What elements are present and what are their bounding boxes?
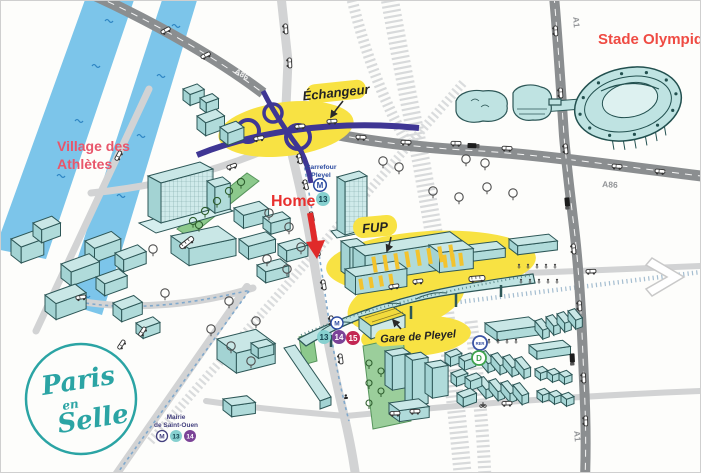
label-stade-olympique: Stade Olympique	[598, 31, 701, 48]
tree-icon	[455, 193, 463, 204]
tree-icon	[395, 163, 403, 174]
line-14-badge-label: 14	[335, 333, 344, 342]
building	[561, 392, 574, 406]
tree-icon	[379, 157, 387, 168]
line-13-badge-label: 13	[319, 195, 328, 204]
label-village-line2: Athlètes	[57, 156, 112, 172]
tree-icon	[509, 189, 517, 200]
car-icon	[117, 339, 127, 350]
building	[45, 284, 86, 320]
building	[509, 234, 557, 255]
label-carrefour-line2: Pleyel	[311, 172, 331, 179]
person-icon	[547, 279, 550, 284]
tree-icon	[481, 159, 489, 170]
tree-icon	[462, 155, 470, 166]
truck-icon	[467, 143, 479, 148]
line-13-badge-label: 13	[172, 434, 180, 441]
metro-m-badge-label: M	[159, 433, 164, 440]
building	[257, 259, 289, 283]
person-icon	[515, 339, 518, 344]
label-carrefour-line1: Carrefour	[306, 164, 337, 171]
label-village-line1: Village des	[57, 138, 130, 154]
person-icon	[488, 339, 491, 344]
metro-m-badge-label: M	[317, 181, 324, 190]
label-a1-north: A1	[571, 16, 582, 28]
stadium	[568, 58, 689, 151]
building	[535, 366, 548, 380]
metro-m-badge-label: M	[334, 321, 339, 328]
tree-icon	[149, 245, 157, 256]
line-13-badge-label: 13	[320, 333, 329, 342]
truck-icon	[570, 353, 576, 365]
aquatic-centre-buildings	[456, 85, 561, 122]
building	[113, 296, 142, 322]
person-icon	[538, 279, 541, 284]
station-mairie-saint-ouen: Mairie de Saint-Ouen M 13 14	[154, 414, 198, 442]
building	[529, 340, 571, 359]
truck-icon	[564, 197, 570, 209]
person-icon	[506, 339, 509, 344]
building	[251, 339, 274, 358]
line-14-badge-label: 14	[186, 434, 194, 441]
building	[239, 232, 276, 260]
person-icon	[554, 264, 557, 269]
building	[515, 357, 531, 379]
tree-icon	[161, 289, 169, 300]
person-icon	[536, 264, 539, 269]
car-icon	[570, 244, 576, 254]
rer-badge-label: RER	[476, 341, 485, 346]
building	[485, 317, 541, 341]
label-a1-south: A1	[572, 430, 583, 442]
car-icon	[502, 401, 512, 407]
car-icon	[586, 269, 596, 275]
building	[547, 368, 560, 382]
tree-icon	[483, 183, 491, 194]
line-15-badge-label: 15	[349, 334, 358, 343]
building	[389, 399, 429, 422]
label-mairie-line2: de Saint-Ouen	[154, 422, 198, 429]
label-mairie-line1: Mairie	[167, 414, 186, 421]
person-icon	[545, 264, 548, 269]
person-icon	[556, 279, 559, 284]
building	[549, 390, 562, 404]
chevron-path-icon	[646, 258, 684, 296]
label-a86-east: A86	[602, 179, 618, 190]
scooter-icon	[344, 394, 348, 399]
building	[207, 177, 230, 213]
rer-d-badge-label: D	[476, 354, 482, 363]
car-icon	[337, 354, 344, 365]
building	[223, 396, 255, 417]
map-canvas: Stade Olympique Village des Athlètes Éch…	[0, 0, 701, 473]
label-fup: FUP	[361, 219, 389, 236]
label-home: Home	[271, 193, 316, 210]
building	[425, 360, 448, 398]
paris-en-selle-logo: Paris en Selle	[26, 344, 136, 454]
building	[559, 370, 572, 384]
